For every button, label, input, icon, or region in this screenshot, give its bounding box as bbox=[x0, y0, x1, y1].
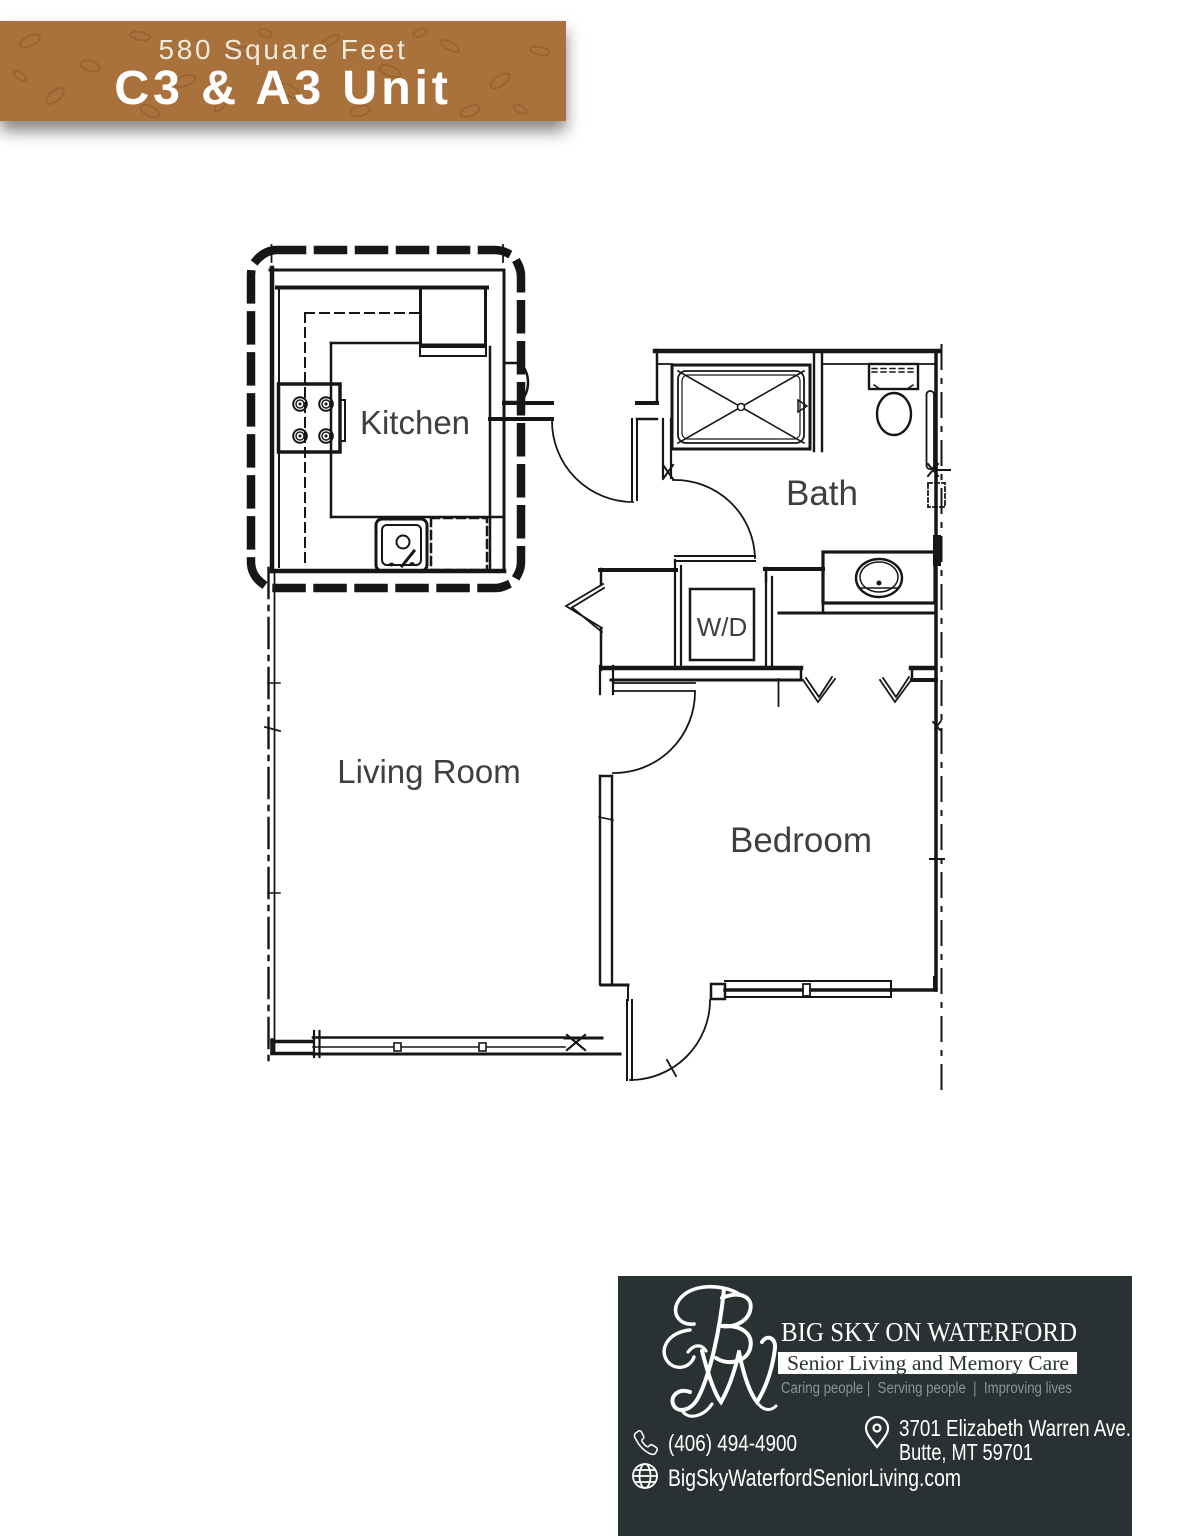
svg-text:Bedroom: Bedroom bbox=[730, 821, 872, 860]
svg-text:Living Room: Living Room bbox=[337, 753, 520, 790]
svg-text:Bath: Bath bbox=[786, 474, 858, 513]
svg-text:W/D: W/D bbox=[697, 612, 748, 642]
svg-text:Kitchen: Kitchen bbox=[360, 404, 470, 441]
